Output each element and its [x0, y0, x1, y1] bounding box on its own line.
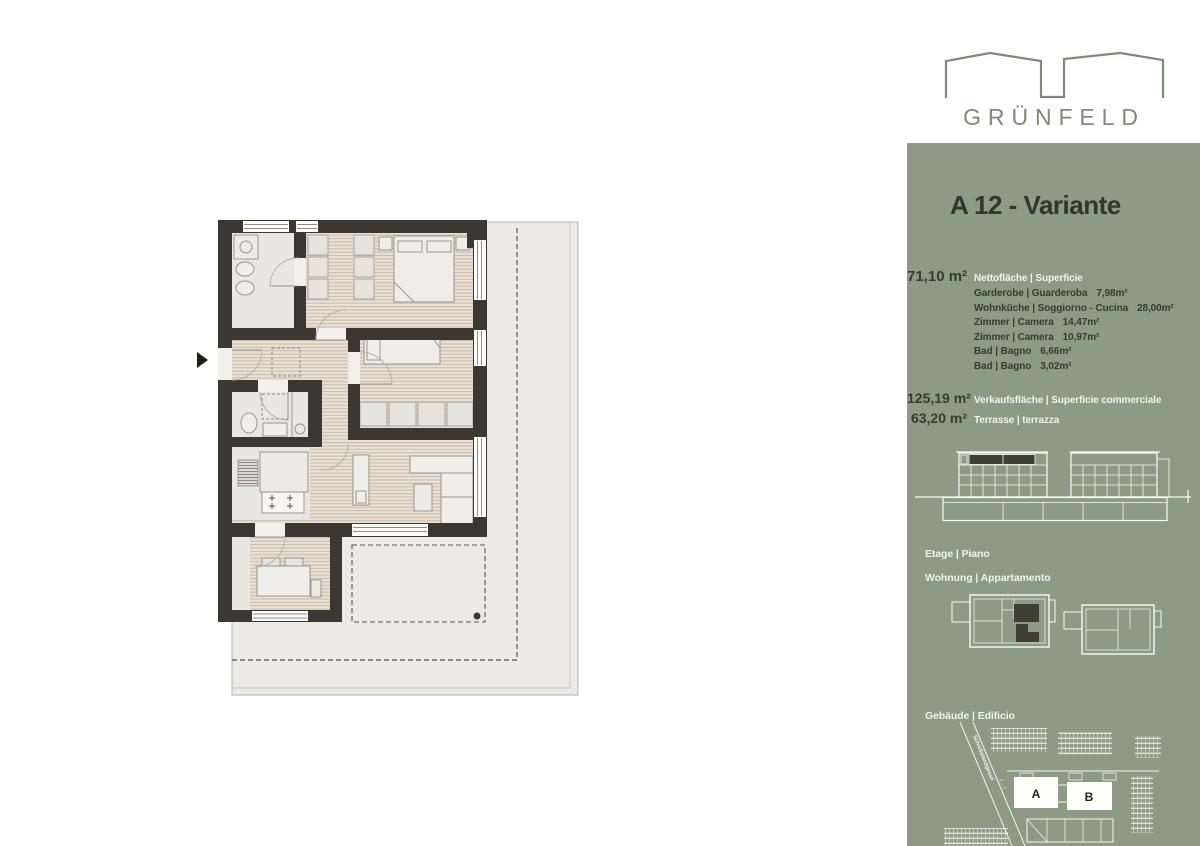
terrace-area-row: 63,20 m² Terrasse | terrazza	[907, 410, 1059, 426]
terrace-area-label: Terrasse | terrazza	[974, 415, 1059, 426]
building-a-label: A	[1032, 787, 1041, 801]
stove	[262, 492, 304, 513]
net-area-label: Nettofläche | Superficie	[974, 273, 1083, 284]
apartment-location-fill	[1014, 604, 1039, 642]
info-panel: A 12 - Variante 71,10 m² Nettofläche | S…	[907, 143, 1200, 846]
toilet-1	[236, 281, 254, 295]
dining-table	[353, 455, 369, 505]
floor-section-label: Etage | Piano	[925, 548, 990, 560]
entrance-arrow	[197, 352, 208, 368]
room-area-row: Bad | Bagno6,66m²	[974, 346, 1071, 357]
nightstand-left	[379, 237, 392, 250]
room-area-row: Garderobe | Guarderoba7,98m²	[974, 288, 1128, 299]
building-b-label: B	[1085, 790, 1094, 804]
sales-area-row: 125,19 m² Verkaufsfläche | Superficie co…	[907, 390, 1161, 406]
sales-area-label: Verkaufsfläche | Superficie commerciale	[974, 395, 1161, 406]
brand-name: GRÜNFELD	[938, 104, 1170, 131]
apartment-title: A 12 - Variante	[950, 190, 1121, 221]
net-area-row: 71,10 m² Nettofläche | Superficie	[907, 268, 1083, 285]
terrace-drain-dot	[474, 613, 481, 620]
keyplan-other	[1064, 605, 1161, 654]
fridge	[238, 460, 258, 486]
grunfeld-buildings-icon	[940, 48, 1168, 102]
building-elevation	[907, 443, 1199, 533]
net-area-value: 71,10 m²	[907, 268, 967, 285]
keyplans	[907, 588, 1199, 662]
apartment-section-label: Wohnung | Appartamento	[925, 572, 1051, 584]
side-unit	[311, 580, 321, 597]
wardrobe-2	[360, 402, 473, 426]
terrace-area-value: 63,20 m²	[907, 410, 967, 426]
room-area-row: Zimmer | Camera10,97m²	[974, 332, 1099, 343]
site-plan: Schießstandgasse ( ... )	[907, 722, 1199, 846]
sales-area-value: 125,19 m²	[907, 390, 967, 406]
washbasin-2	[263, 423, 287, 436]
room-area-row: Bad | Bagno3,02m²	[974, 361, 1071, 372]
building-section-label: Gebäude | Edificio	[925, 710, 1015, 722]
shower-1	[234, 235, 258, 259]
washbasin-1	[236, 262, 254, 276]
toilet-2	[241, 413, 257, 433]
room-area-row: Zimmer | Camera14,47m²	[974, 317, 1099, 328]
highlighted-floor	[969, 455, 1035, 465]
plan-sheet: GRÜNFELD A 12 - Variante 71,10 m² Nettof…	[0, 0, 1200, 846]
kitchen-counter	[260, 452, 308, 492]
room-area-row: Wohnküche | Soggiorno - Cucina28,00m²	[974, 303, 1174, 314]
double-bed	[394, 236, 454, 302]
keyplan-highlighted	[952, 595, 1055, 647]
coffee-table	[414, 484, 432, 511]
nook-table	[257, 566, 310, 596]
